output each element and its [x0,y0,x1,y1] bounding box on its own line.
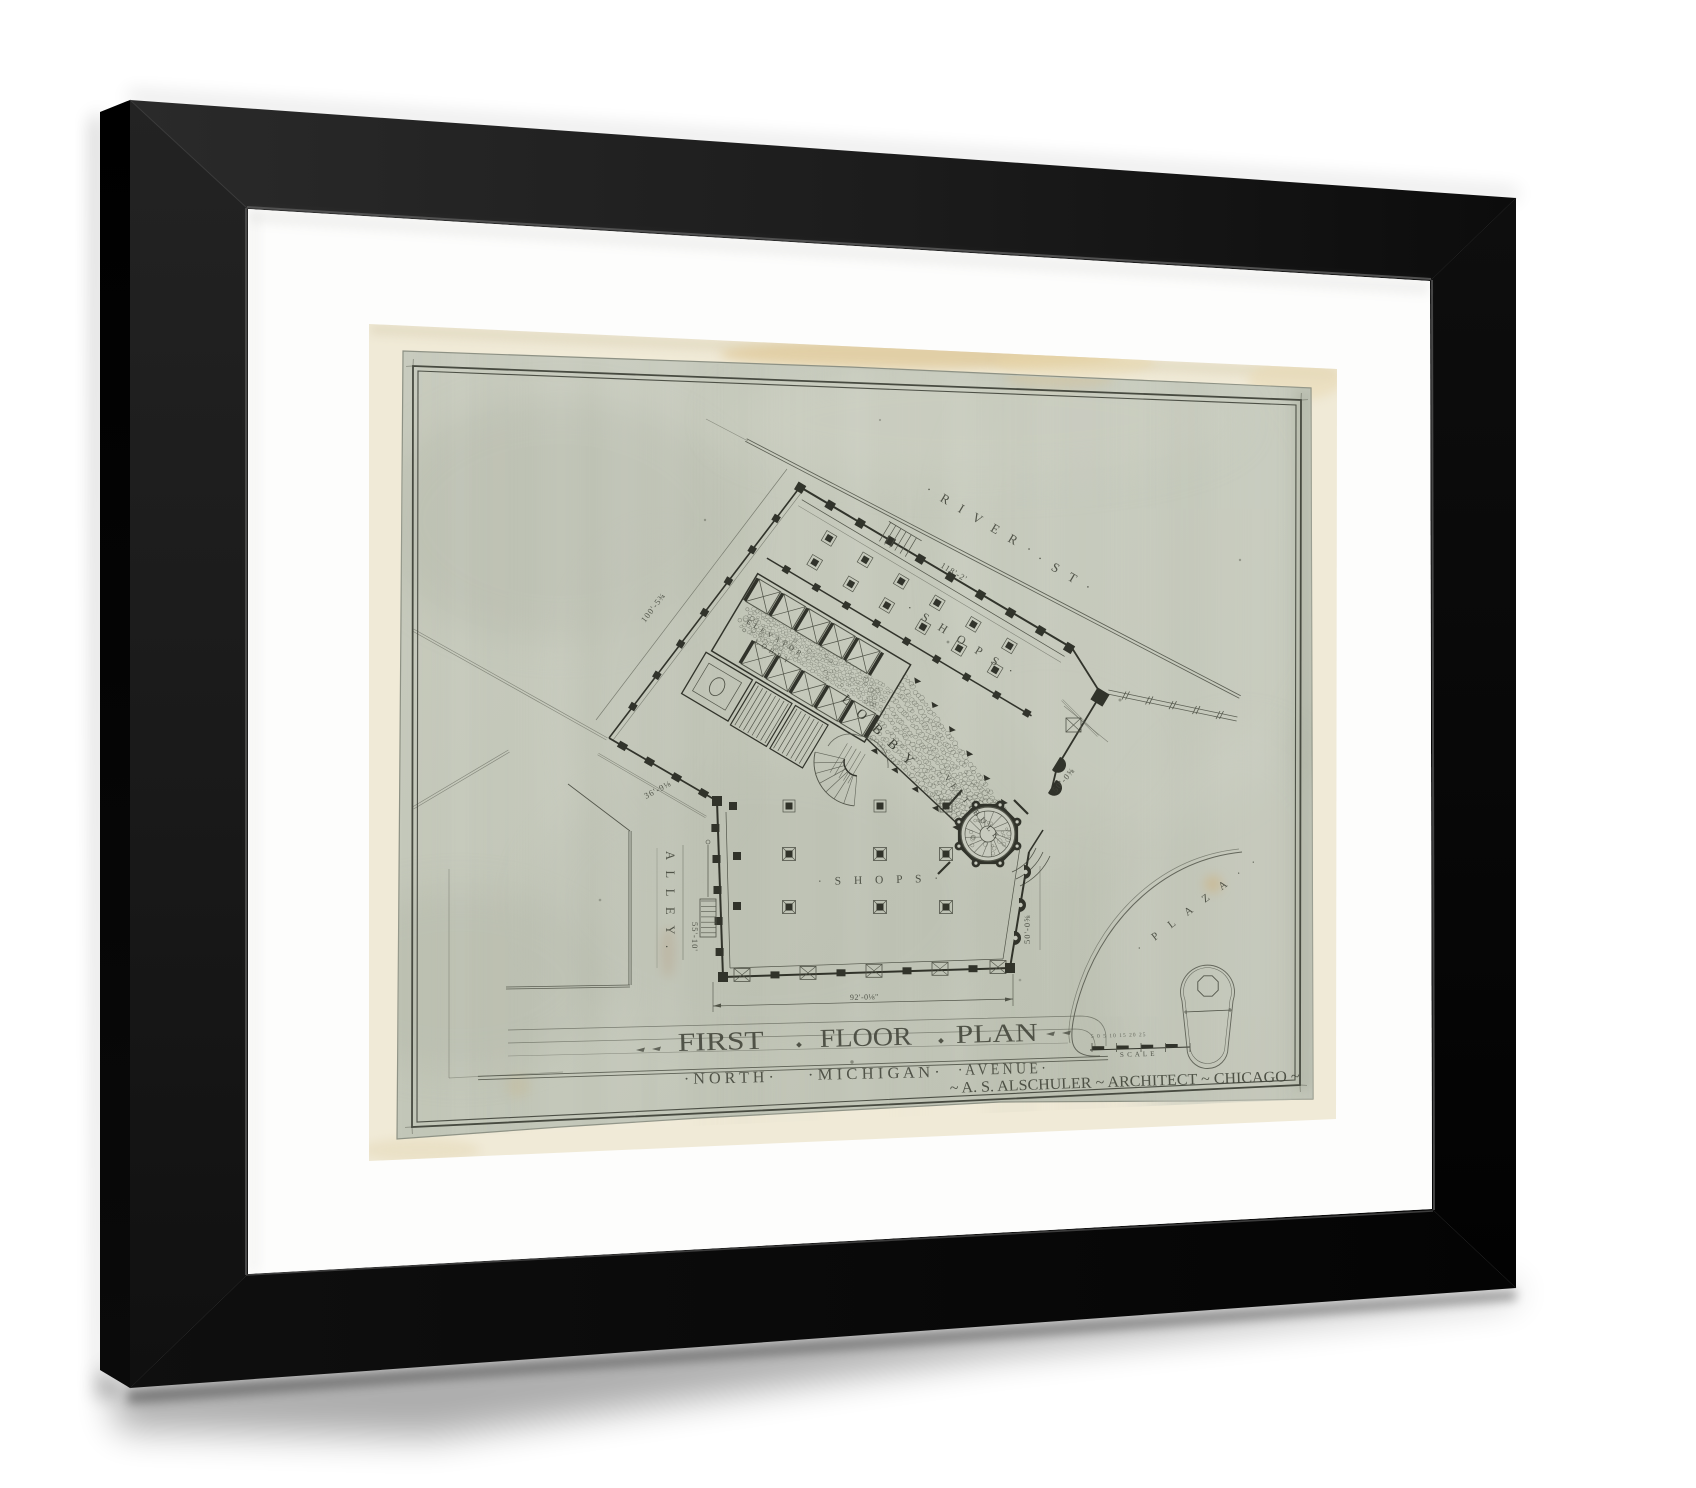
svg-text:55'-10': 55'-10' [690,922,700,952]
svg-text:50'-0⅝: 50'-0⅝ [1022,915,1032,945]
svg-text:PLAN: PLAN [955,1018,1038,1049]
svg-text:A L L E Y .: A L L E Y . [663,851,677,952]
svg-text:· A V E N U E ·: · A V E N U E · [958,1060,1046,1079]
svg-text:FLOOR: FLOOR [819,1022,912,1053]
svg-text:92'-0⅛": 92'-0⅛" [850,992,879,1002]
svg-text:· N O R T H ·: · N O R T H · [684,1069,774,1088]
svg-text:S C A L E: S C A L E [1120,1050,1156,1059]
svg-text:· M I C H I G A N ·: · M I C H I G A N · [808,1064,940,1084]
svg-text:FIRST: FIRST [677,1026,764,1057]
